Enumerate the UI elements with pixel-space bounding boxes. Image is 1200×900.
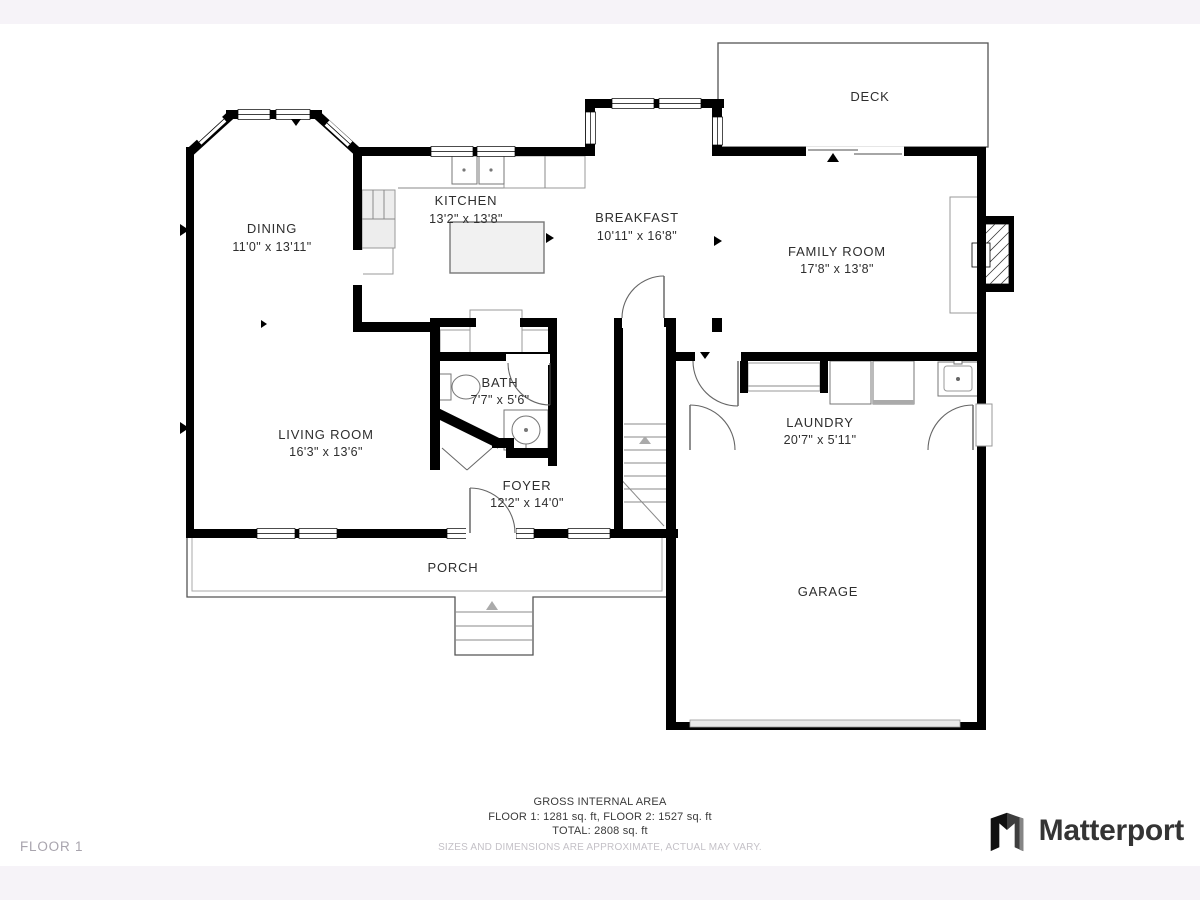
room-dims-dining: 11'0" x 13'11" [232,240,311,254]
laundry-fixtures [748,356,978,404]
room-label-foyer: FOYER [503,478,552,493]
porch-steps-arrow [486,601,498,610]
washer [830,361,871,404]
room-label-living-room: LIVING ROOM [278,427,373,442]
gross-internal-area-title: GROSS INTERNAL AREA [400,795,800,810]
stairs [616,424,666,526]
deck-sliding-door [806,147,904,157]
room-dims-living-room: 16'3" x 13'6" [289,445,363,459]
floorplan-canvas: DECK DINING 11'0" x 13'11" KITCHEN 13'2"… [0,0,1200,900]
room-label-garage: GARAGE [798,584,858,599]
matterport-logo-icon [984,808,1030,854]
room-label-deck: DECK [850,89,889,104]
walls [186,99,986,730]
floorplan-page: DECK DINING 11'0" x 13'11" KITCHEN 13'2"… [0,0,1200,900]
total-area: TOTAL: 2808 sq. ft [400,824,800,839]
garage-door [690,720,960,727]
room-label-breakfast: BREAKFAST [595,210,679,225]
floor-label: FLOOR 1 [20,839,83,854]
room-label-porch: PORCH [428,560,479,575]
area-summary: GROSS INTERNAL AREA FLOOR 1: 1281 sq. ft… [400,795,800,855]
floor-areas: FLOOR 1: 1281 sq. ft, FLOOR 2: 1527 sq. … [400,810,800,825]
room-label-laundry: LAUNDRY [786,415,854,430]
matterport-logo-text: Matterport [1039,814,1184,848]
size-disclaimer: SIZES AND DIMENSIONS ARE APPROXIMATE, AC… [400,841,800,856]
room-dims-laundry: 20'7" x 5'11" [784,433,857,447]
room-dims-breakfast: 10'11" x 16'8" [597,229,677,243]
kitchen-counter [362,248,393,274]
porch-outline [187,537,667,655]
hall-closet-cabinets [440,310,549,353]
room-label-dining: DINING [247,221,297,236]
room-dims-bath: 7'7" x 5'6" [470,393,529,407]
dryer [873,361,914,404]
laundry-closet-shelf [748,363,820,391]
room-dims-kitchen: 13'2" x 13'8" [429,212,503,226]
room-label-bath: BATH [482,375,519,390]
room-dims-foyer: 12'2" x 14'0" [490,496,564,510]
room-label-kitchen: KITCHEN [435,193,498,208]
room-dims-family-room: 17'8" x 13'8" [800,262,874,276]
room-label-family-room: FAMILY ROOM [788,244,886,259]
kitchen-island [450,222,544,273]
matterport-branding: Matterport [984,808,1184,854]
